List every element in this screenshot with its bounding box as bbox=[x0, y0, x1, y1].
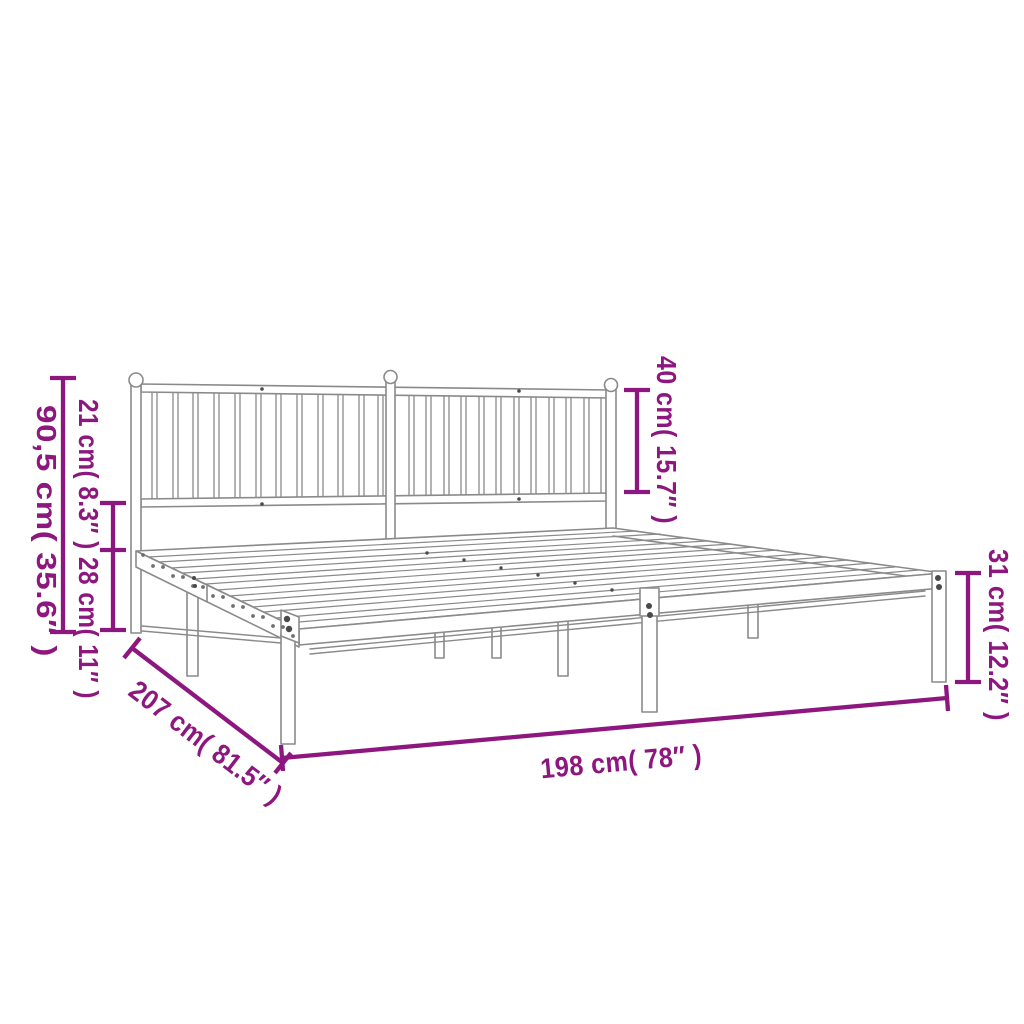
headboard-spindles-right bbox=[409, 395, 606, 496]
post-finial-center bbox=[384, 371, 397, 384]
dimension-line-frame-height bbox=[955, 573, 981, 682]
label-headboard-height: 40 cm( 15.7″ ) bbox=[651, 356, 682, 524]
bracket-front-center bbox=[640, 588, 659, 616]
label-width: 198 cm( 78″ ) bbox=[539, 739, 703, 785]
label-frame-height: 31 cm( 12.2″ ) bbox=[983, 549, 1014, 721]
headboard-post-center bbox=[386, 379, 395, 545]
headboard-post-left bbox=[131, 381, 141, 633]
leg-front-left bbox=[281, 634, 295, 744]
dimension-line-headboard-height bbox=[624, 390, 650, 492]
headboard-spindles-left bbox=[152, 392, 383, 499]
label-headboard-sections: 21 cm( 8.3″ ) 28 cm( 11″ ) bbox=[73, 399, 104, 699]
label-length: 207 cm( 81.5″ ) bbox=[123, 674, 288, 810]
bed-frame bbox=[129, 371, 946, 745]
headboard-bottom-rail bbox=[141, 493, 610, 507]
bed-dimension-drawing: 90,5 cm( 35.6″ ) 21 cm( 8.3″ ) 28 cm( 11… bbox=[0, 0, 1024, 1024]
product-dimension-diagram: 90,5 cm( 35.6″ ) 21 cm( 8.3″ ) 28 cm( 11… bbox=[0, 0, 1024, 1024]
post-finial-right bbox=[605, 379, 618, 392]
label-height-total: 90,5 cm( 35.6″ ) bbox=[31, 405, 62, 657]
post-finial-left bbox=[129, 373, 143, 387]
headboard-top-rail bbox=[141, 384, 610, 398]
